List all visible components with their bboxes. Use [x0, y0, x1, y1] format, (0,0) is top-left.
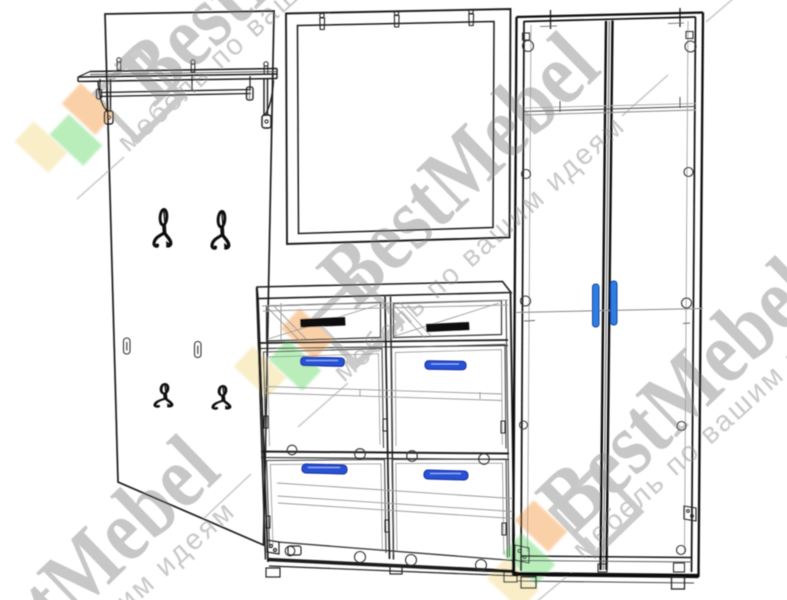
svg-text:BestMebel: BestMebel: [0, 418, 237, 600]
